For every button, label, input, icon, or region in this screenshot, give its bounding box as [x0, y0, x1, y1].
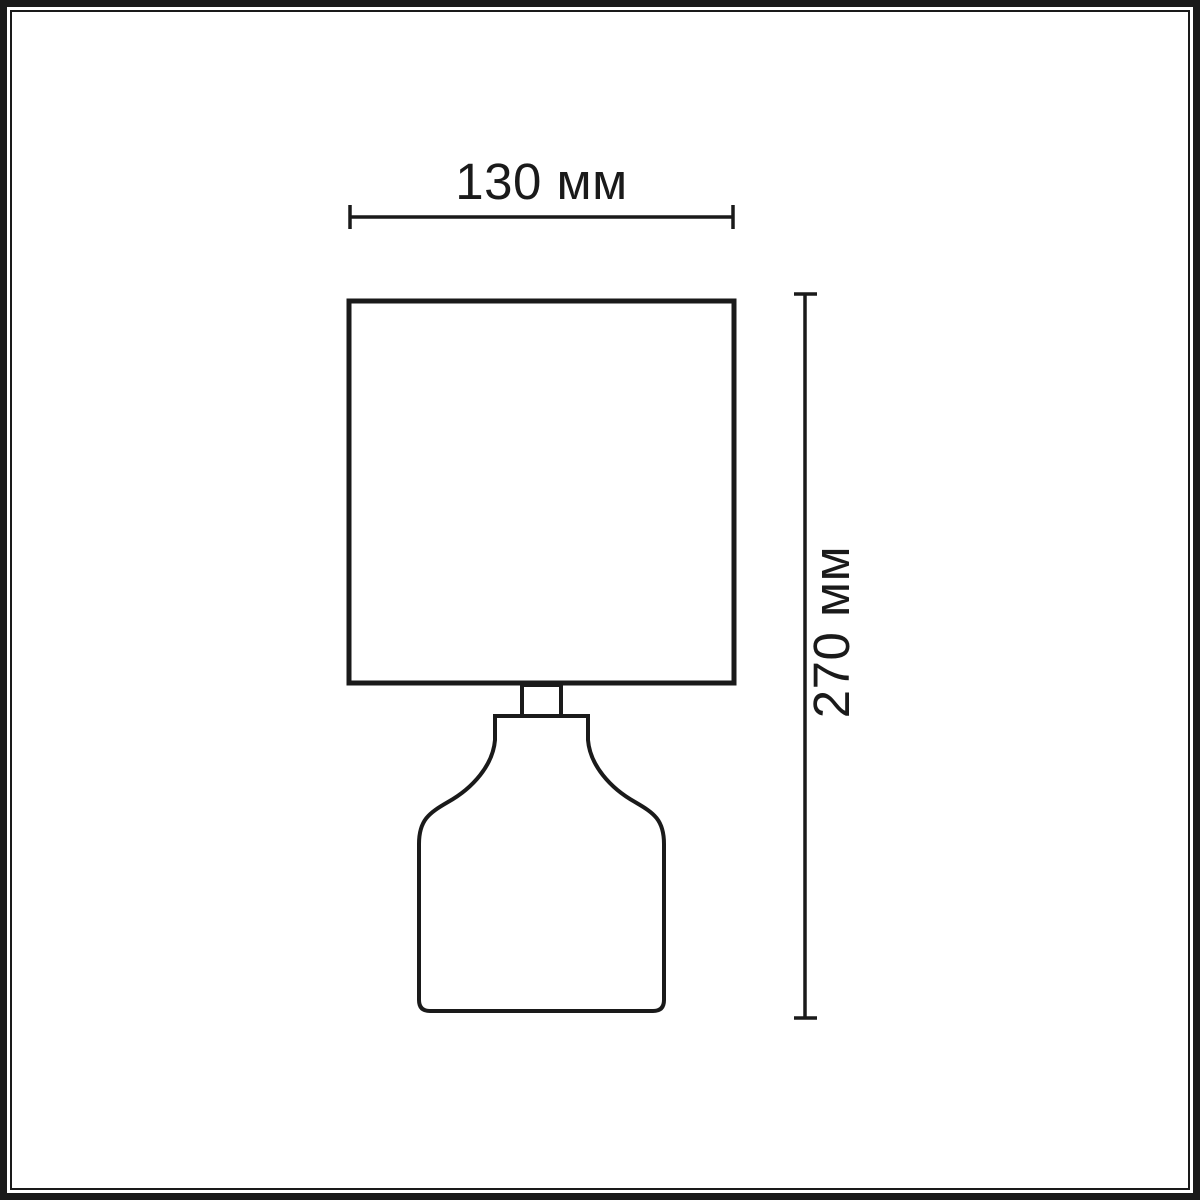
lamp-neck — [522, 685, 561, 716]
drawing-canvas: 130 мм 270 мм — [0, 0, 1200, 1200]
lamp-base — [419, 716, 664, 1011]
lamp-shade — [349, 301, 734, 683]
height-dimension-label: 270 мм — [804, 522, 860, 742]
width-dimension-label: 130 мм — [349, 156, 734, 208]
